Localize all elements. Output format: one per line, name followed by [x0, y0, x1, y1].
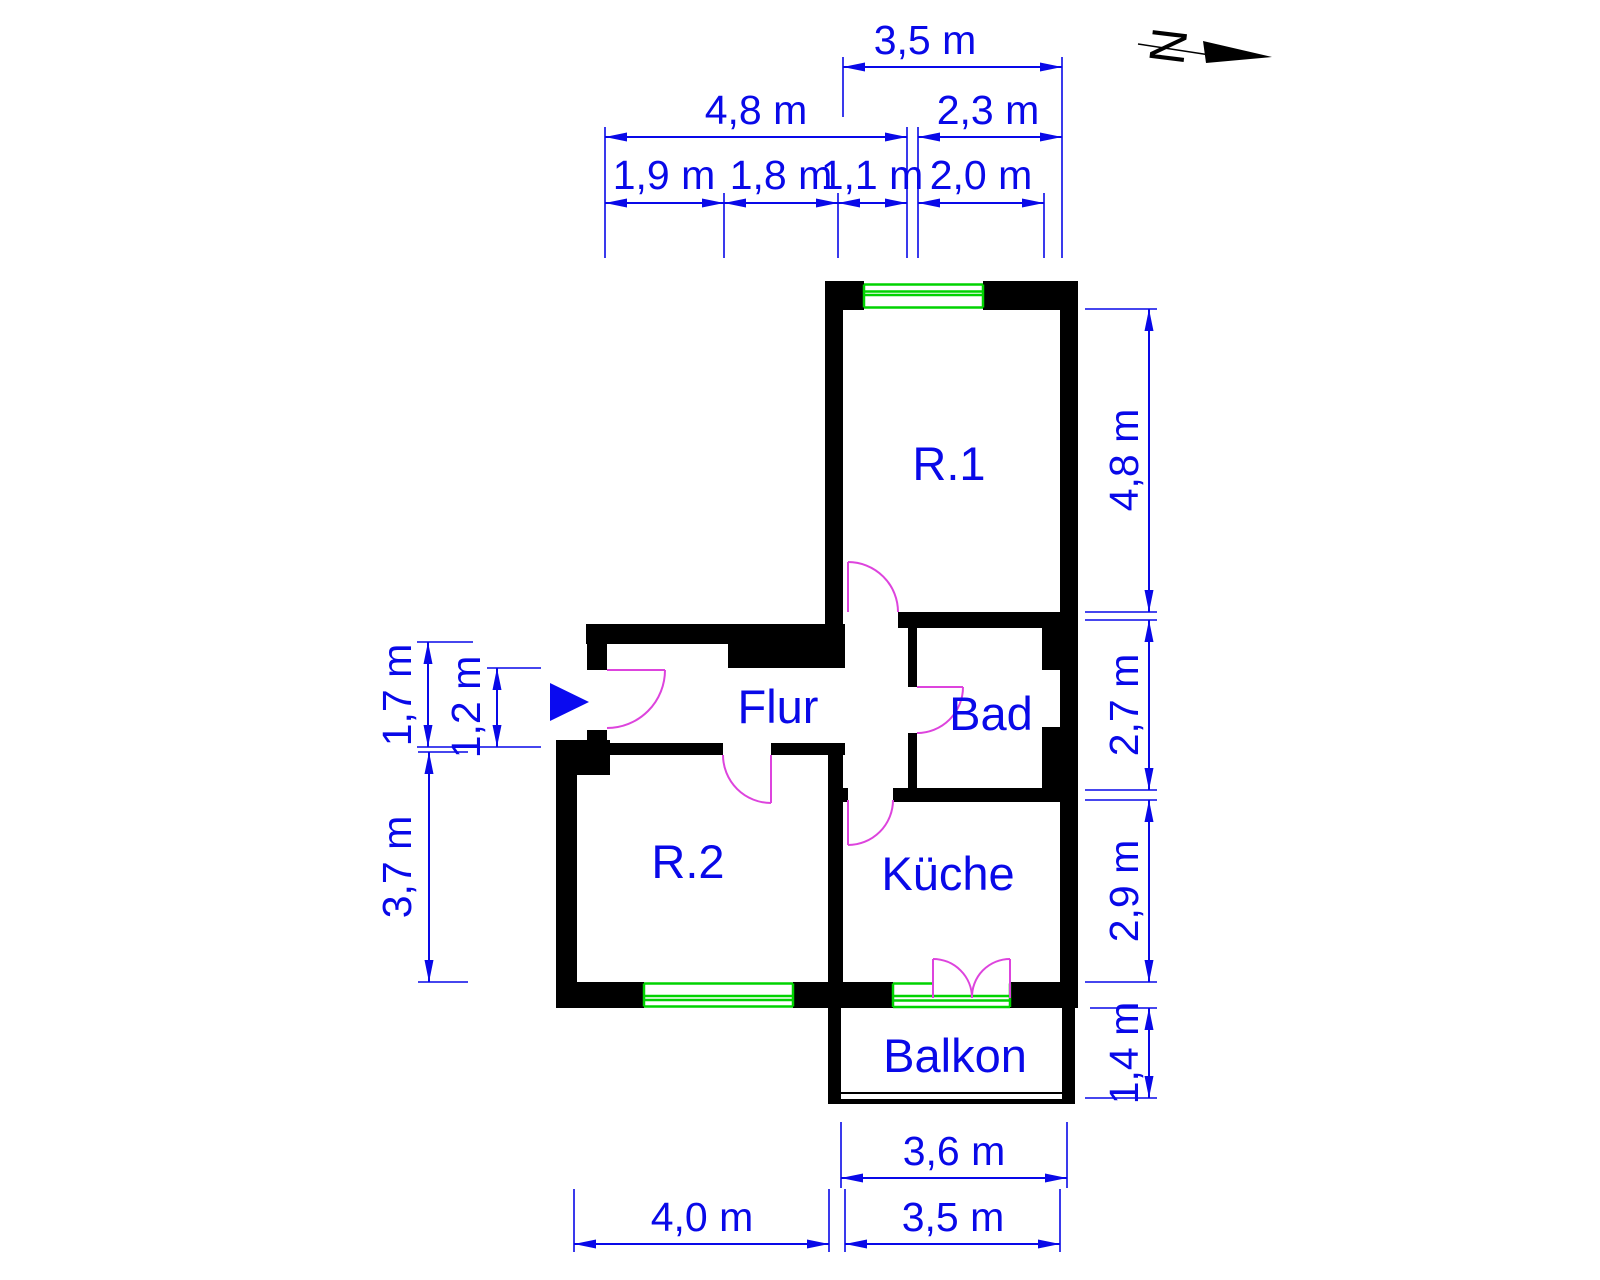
wall-r2-kueche	[828, 743, 843, 982]
dim-bottom-40: 4,0 m	[651, 1194, 754, 1240]
room-label-r1: R.1	[912, 437, 985, 490]
north-label: N	[1138, 25, 1198, 68]
window-r2	[644, 984, 793, 1007]
dim-left-17: 1,7 m	[374, 644, 420, 747]
wall-balkon-bottom-inner	[841, 1092, 1062, 1094]
wall-balkon-right	[1062, 1008, 1075, 1103]
room-label-kueche: Küche	[881, 847, 1014, 900]
dim-right-48: 4,8 m	[1101, 409, 1147, 512]
wall-bottom-c	[1010, 982, 1078, 1008]
dim-top-35: 3,5 m	[874, 17, 977, 63]
wall-bottom-a	[556, 982, 644, 1008]
wall-entry-upper	[587, 644, 607, 670]
door-kueche	[848, 800, 893, 845]
room-label-flur: Flur	[738, 680, 819, 733]
dim-right-27: 2,7 m	[1101, 654, 1147, 757]
dim-top-20: 2,0 m	[930, 152, 1033, 198]
wall-flur-bottom-a	[607, 743, 723, 755]
bad-wall-niche	[1042, 670, 1060, 727]
entrance-arrow-icon	[550, 683, 589, 721]
dimensions-left: 1,7 m 1,2 m 3,7 m	[374, 642, 541, 982]
dim-right-14: 1,4 m	[1101, 1002, 1147, 1105]
door-balkon-double	[933, 959, 1010, 998]
dimensions-bottom: 3,6 m 4,0 m 3,5 m	[574, 1122, 1067, 1252]
room-label-bad: Bad	[949, 687, 1033, 740]
dim-bottom-36: 3,6 m	[903, 1128, 1006, 1174]
dim-bottom-35: 3,5 m	[902, 1194, 1005, 1240]
floor-plan-drawing: N R.1 Flur Bad R.2 Küche Balkon 3,5 m 4,…	[0, 0, 1600, 1280]
wall-exterior-right	[1060, 281, 1078, 1008]
wall-kueche-door-stub	[843, 788, 848, 802]
dim-top-48: 4,8 m	[705, 87, 808, 133]
window-kueche-balkon-sill	[893, 984, 1010, 1008]
wall-r1-left	[825, 281, 843, 668]
north-arrow-icon: N	[1138, 25, 1272, 68]
wall-bottom-b	[793, 982, 893, 1008]
dim-top-11: 1,1 m	[821, 152, 924, 198]
dim-top-19: 1,9 m	[613, 152, 716, 198]
wall-balkon-left	[828, 1008, 841, 1103]
room-label-r2: R.2	[651, 835, 724, 888]
door-entry	[607, 670, 665, 728]
dim-left-12: 1,2 m	[443, 656, 489, 759]
wall-flur-top-bar	[586, 624, 728, 644]
wall-r1-bottom	[898, 612, 1062, 628]
dimensions-top: 3,5 m 4,8 m 2,3 m 1,9 m 1,8 m 1,1 m 2,0 …	[605, 17, 1062, 258]
dim-top-18: 1,8 m	[730, 152, 833, 198]
wall-bad-bottom	[893, 788, 1078, 802]
door-r1	[848, 562, 898, 612]
wall-balkon-bottom-outer	[828, 1099, 1075, 1104]
wall-flur-thick-block	[728, 624, 845, 668]
wall-r2-left	[556, 740, 577, 1008]
dim-right-29: 2,9 m	[1101, 840, 1147, 943]
dim-top-23: 2,3 m	[937, 87, 1040, 133]
door-flur-r2	[723, 755, 771, 803]
room-label-balkon: Balkon	[883, 1029, 1027, 1082]
window-r1	[864, 285, 983, 308]
dimensions-right: 4,8 m 2,7 m 2,9 m 1,4 m	[1085, 309, 1157, 1104]
dim-left-37: 3,7 m	[374, 816, 420, 919]
floor-plan-page: N R.1 Flur Bad R.2 Küche Balkon 3,5 m 4,…	[0, 0, 1600, 1280]
wall-bad-left-upper	[908, 612, 917, 687]
